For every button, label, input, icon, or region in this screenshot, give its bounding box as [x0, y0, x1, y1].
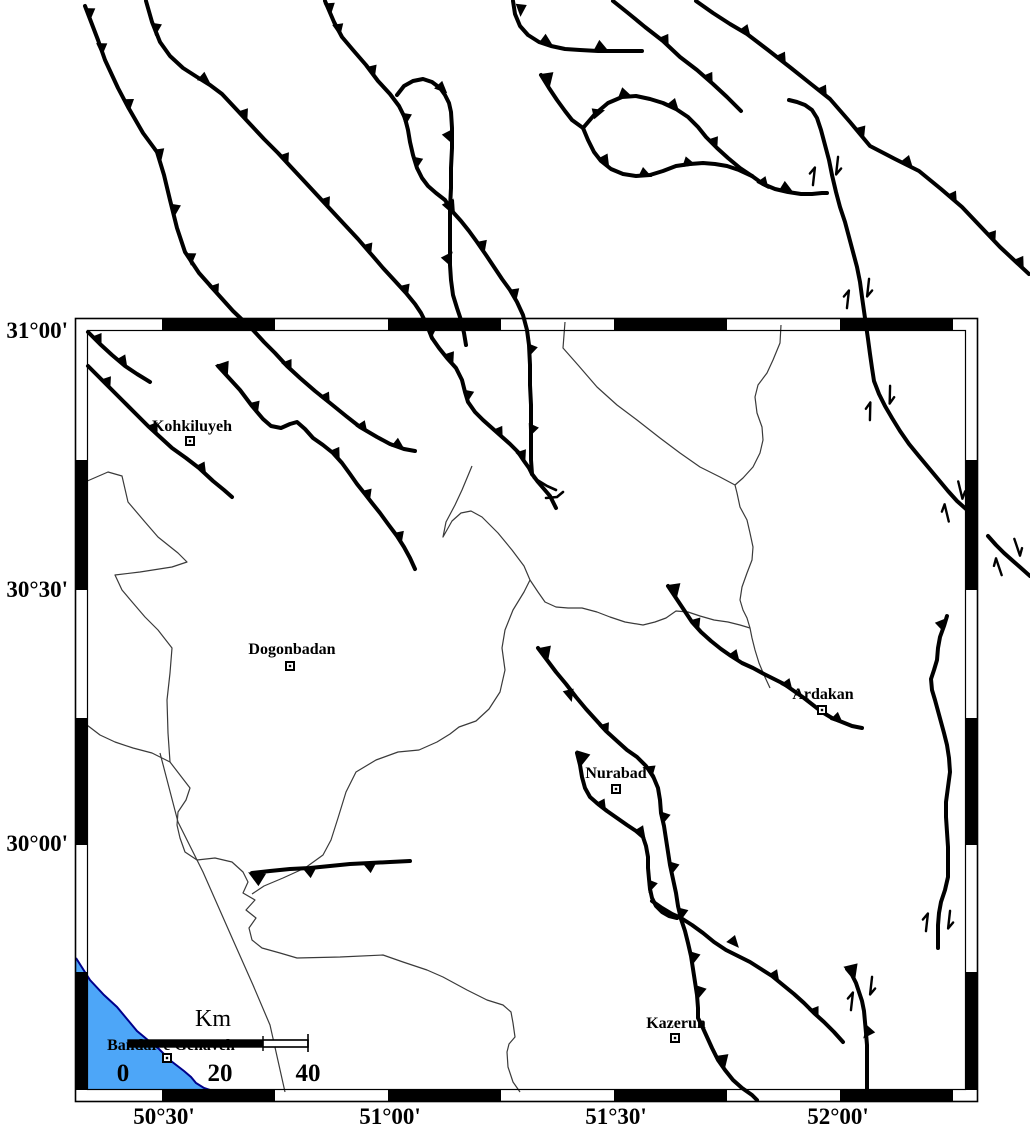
city-label: Ardakan [792, 686, 853, 703]
lat-label-31-00: 31°00' [6, 318, 68, 343]
lon-label-51-30: 51°30' [585, 1104, 647, 1129]
city-marker-icon [186, 437, 194, 445]
river-line [85, 472, 187, 762]
city-dogonbadan: Dogonbadan [248, 641, 335, 670]
river-line [735, 325, 781, 485]
city-label: Dogonbadan [248, 641, 335, 658]
cities: Kohkiluyeh Dogonbadan Ardakan Nurabad Ka… [107, 418, 854, 1062]
river-line [735, 485, 770, 688]
city-kazerun: Kazerun [646, 1015, 706, 1042]
scale-bar-tick-0: 0 [117, 1060, 130, 1087]
city-nurabad: Nurabad [585, 765, 646, 793]
fault-ns-short [847, 969, 867, 1094]
scale-bar-tick-40: 40 [296, 1060, 321, 1087]
fault-lines [85, 1, 1030, 1100]
city-label: Bandar-e Genaveh [107, 1037, 235, 1054]
thrust-fault-ew [252, 861, 410, 873]
fault-map-page: { "map": { "cities": [ {"name": "Kohkilu… [0, 0, 1030, 1132]
lon-label-50-30: 50°30' [133, 1104, 195, 1129]
lat-label-30-30: 30°30' [6, 577, 68, 602]
city-label: Nurabad [585, 765, 646, 782]
lon-label-52-00: 52°00' [807, 1104, 869, 1129]
city-marker-icon [818, 706, 826, 714]
sea-polygon [76, 958, 210, 1090]
thrust-fault-ardakan [668, 586, 862, 728]
frame-black-segments [76, 319, 978, 1102]
city-marker-icon [286, 662, 294, 670]
lon-label-51-00: 51°00' [359, 1104, 421, 1129]
fault-map-canvas: Km 0 20 40 Kohkiluyeh Dogonbadan Ardakan… [0, 0, 1030, 1132]
thrust-fault-d [696, 1, 1029, 274]
fault-wavy-east [931, 616, 950, 948]
map-frame [76, 319, 978, 1102]
thrust-fault-l1 [218, 366, 415, 569]
strike-slip-fault [789, 100, 973, 514]
city-label: Kazerun [646, 1015, 706, 1032]
river-line [563, 322, 735, 485]
fault-lens-lower [583, 128, 752, 176]
strike-slip-segment-east [988, 536, 1030, 576]
city-label: Kohkiluyeh [152, 418, 232, 435]
city-ardakan: Ardakan [792, 686, 853, 714]
thrust-fault-a [85, 6, 415, 451]
lat-label-30-00: 30°00' [6, 831, 68, 856]
axis-labels: 31°00' 30°30' 30°00' 50°30' 51°00' 51°30… [6, 318, 868, 1129]
map-frame-band [76, 319, 978, 1102]
frame-outer-border [76, 319, 978, 1102]
city-marker-icon [671, 1034, 679, 1042]
frame-inner-border [88, 331, 966, 1090]
river-line [530, 580, 750, 628]
strike-slip-arrow-icons [809, 157, 1025, 1011]
city-marker-icon [612, 785, 620, 793]
scale-bar-tick-20: 20 [208, 1060, 233, 1087]
scale-bar-unit: Km [195, 1006, 231, 1032]
thrust-teeth [84, 0, 1030, 1071]
city-marker-icon [163, 1054, 171, 1062]
